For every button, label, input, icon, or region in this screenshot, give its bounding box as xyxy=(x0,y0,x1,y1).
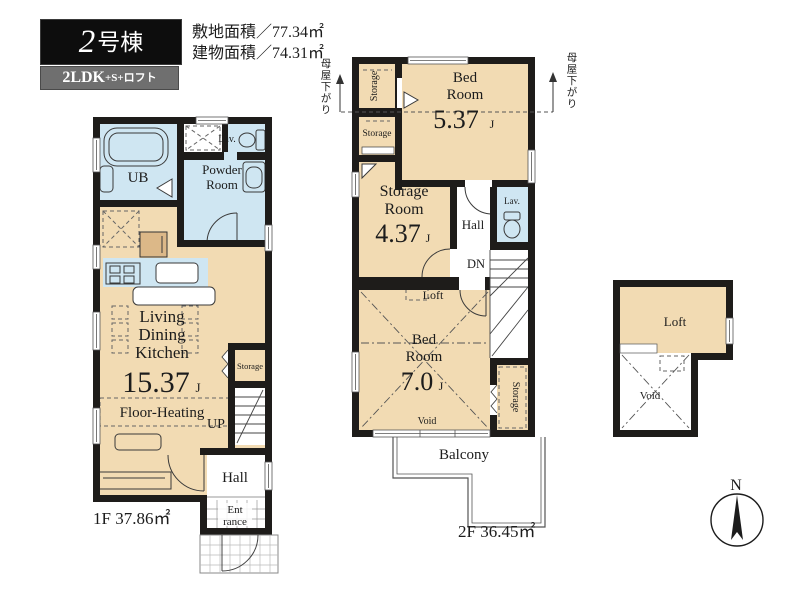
lav-door-opening xyxy=(224,152,237,160)
floor-heating-label: Floor-Heating xyxy=(120,405,205,421)
floor2-stairs xyxy=(490,250,528,358)
storage-room-size: 4.37 xyxy=(375,219,421,248)
room-label-powder-2: Room xyxy=(206,177,238,192)
loft-ladder-mark xyxy=(660,356,684,371)
storage-label-1f: Storage xyxy=(237,361,263,371)
room-label-ldk-2: Dining xyxy=(138,325,186,344)
floor2-plan: 母屋下がり 母屋下がり Storage Storage Bed Room 5.3… xyxy=(320,52,577,541)
bedroom2-size-unit: J xyxy=(439,379,444,393)
bedroom1-label-2: Room xyxy=(447,87,484,103)
porch xyxy=(200,535,278,573)
ldk-size-unit: J xyxy=(195,380,200,395)
loft-room-label: Loft xyxy=(664,314,687,329)
room-label-lav-2f: Lav. xyxy=(504,196,520,206)
storage-label-2f-mid: Storage xyxy=(362,129,391,139)
void-label-2f: Void xyxy=(418,416,437,427)
floor1-area-label: 1F 37.86㎡ xyxy=(93,509,170,528)
bedroom1-size: 5.37 xyxy=(433,105,479,134)
stairs-dn-label: DN xyxy=(467,257,485,271)
bedroom2-label-1: Bed xyxy=(412,332,437,348)
compass-north-label: N xyxy=(730,477,742,494)
room-label-lav-1f: Lav. xyxy=(218,134,235,145)
balcony-label: Balcony xyxy=(439,447,489,463)
storage-label-2f-top: Storage xyxy=(369,70,380,101)
room-label-powder-1: Powder xyxy=(202,162,242,177)
storage-room-size-unit: J xyxy=(426,231,431,245)
floor1-stairs xyxy=(235,388,265,445)
hall-label-2f: Hall xyxy=(462,217,485,232)
loft-window xyxy=(726,318,733,344)
floor1-plan: UB Lav. Powder Room Living Dining Kitche… xyxy=(93,117,278,573)
storage-room-label-2: Room xyxy=(384,201,424,218)
loft-opening xyxy=(620,344,657,353)
floorplan-drawing: UB Lav. Powder Room Living Dining Kitche… xyxy=(0,0,800,591)
room-label-ub: UB xyxy=(128,170,149,186)
floorplan-page: 2号棟 2LDK+S+ロフト 敷地面積／77.34㎡ 建物面積／74.31㎡ xyxy=(0,0,800,591)
floor2-area-label: 2F 36.45㎡ xyxy=(458,522,535,541)
bedroom1-size-unit: J xyxy=(490,117,495,131)
storage-room-label-1: Storage xyxy=(380,183,429,200)
storage-label-2f-right: Storage xyxy=(510,382,521,413)
room-label-ldk-3: Kitchen xyxy=(135,343,189,362)
eaves-label-left: 母屋下がり xyxy=(320,58,331,116)
loft-hatch-label: Loft xyxy=(423,288,444,302)
bedroom2-label-2: Room xyxy=(406,349,443,365)
compass: N xyxy=(711,477,763,546)
stairs-up-label: UP xyxy=(207,417,225,432)
entrance-label-1: Ent xyxy=(227,504,242,516)
loft-plan: Loft Void xyxy=(613,280,733,437)
hall-label-1f: Hall xyxy=(222,470,248,486)
bedroom2-size: 7.0 xyxy=(401,367,434,396)
room-label-ldk-1: Living xyxy=(139,307,185,326)
bedroom1-label-1: Bed xyxy=(453,70,478,86)
compass-needle xyxy=(731,495,743,540)
eaves-label-right: 母屋下がり xyxy=(566,52,577,110)
entrance-label-2: rance xyxy=(223,516,247,528)
loft-void-label: Void xyxy=(640,390,661,402)
ldk-size: 15.37 xyxy=(122,366,190,399)
